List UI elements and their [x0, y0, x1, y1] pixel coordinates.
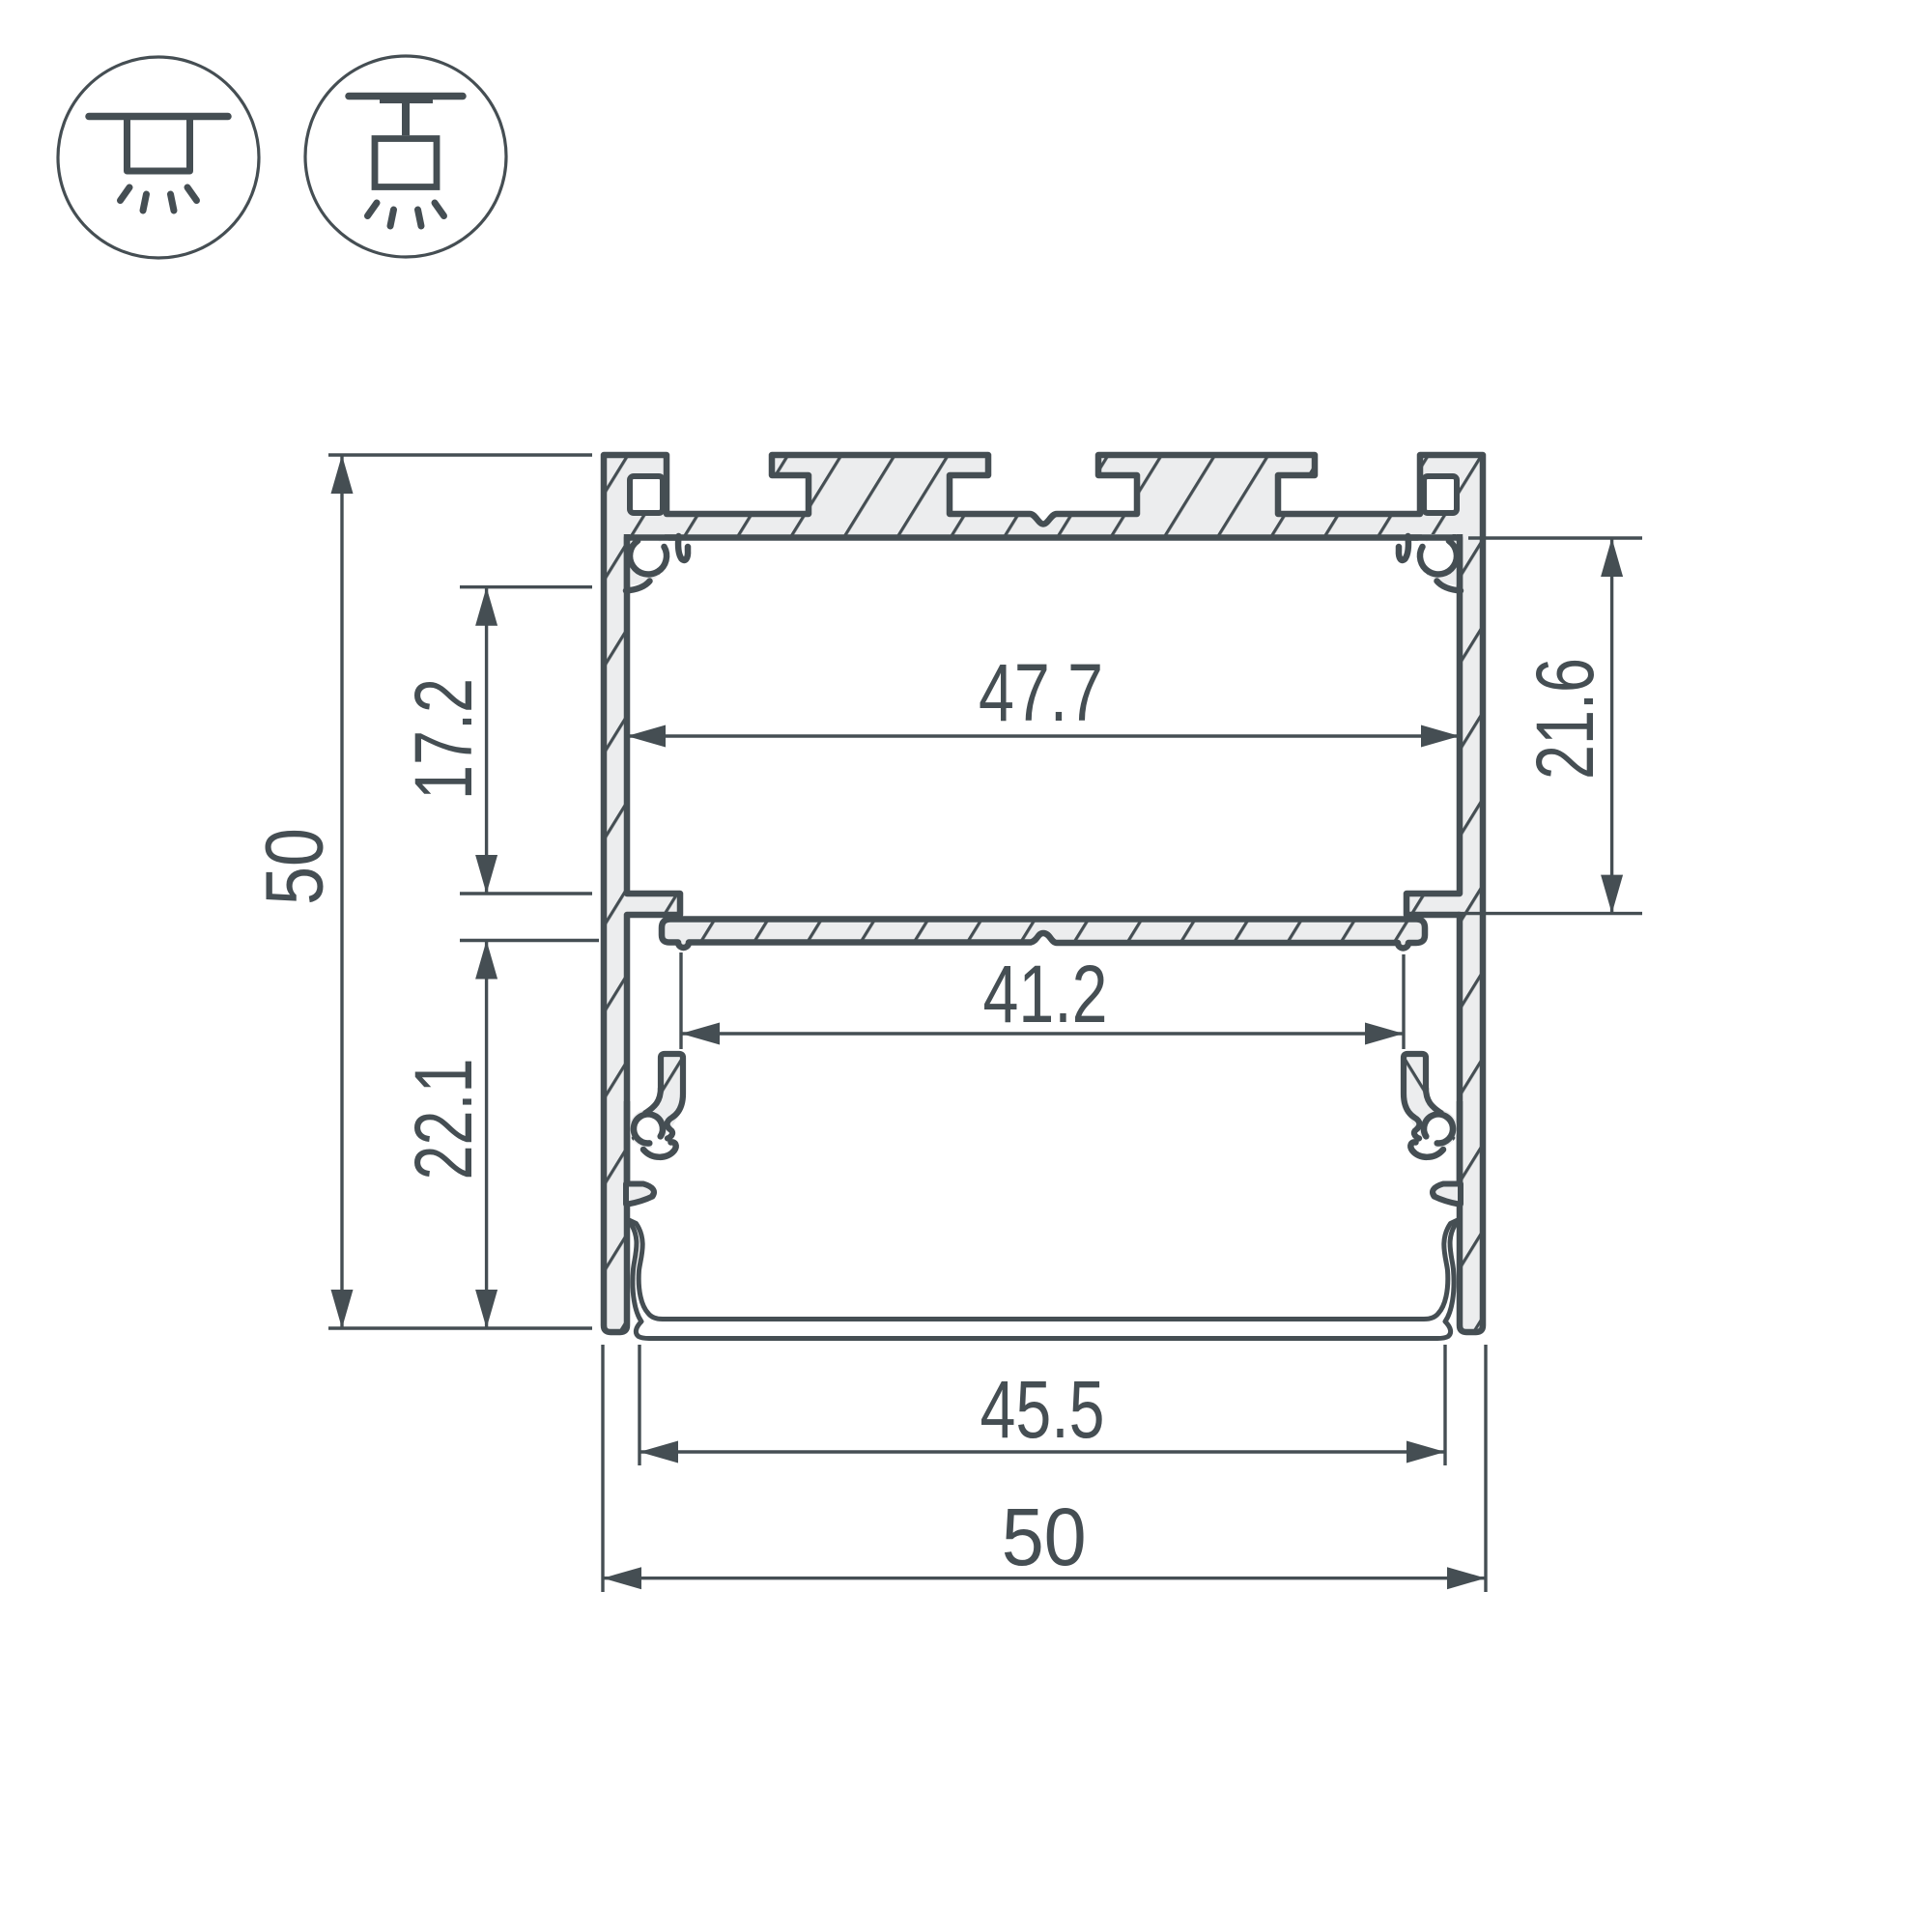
svg-text:47.7: 47.7: [979, 647, 1103, 738]
svg-text:50: 50: [1002, 1492, 1087, 1582]
svg-text:41.2: 41.2: [983, 949, 1108, 1039]
svg-text:50: 50: [249, 828, 340, 905]
svg-text:21.6: 21.6: [1520, 658, 1610, 780]
svg-text:17.2: 17.2: [398, 678, 489, 800]
svg-text:22.1: 22.1: [398, 1059, 489, 1180]
svg-text:45.5: 45.5: [980, 1364, 1105, 1455]
